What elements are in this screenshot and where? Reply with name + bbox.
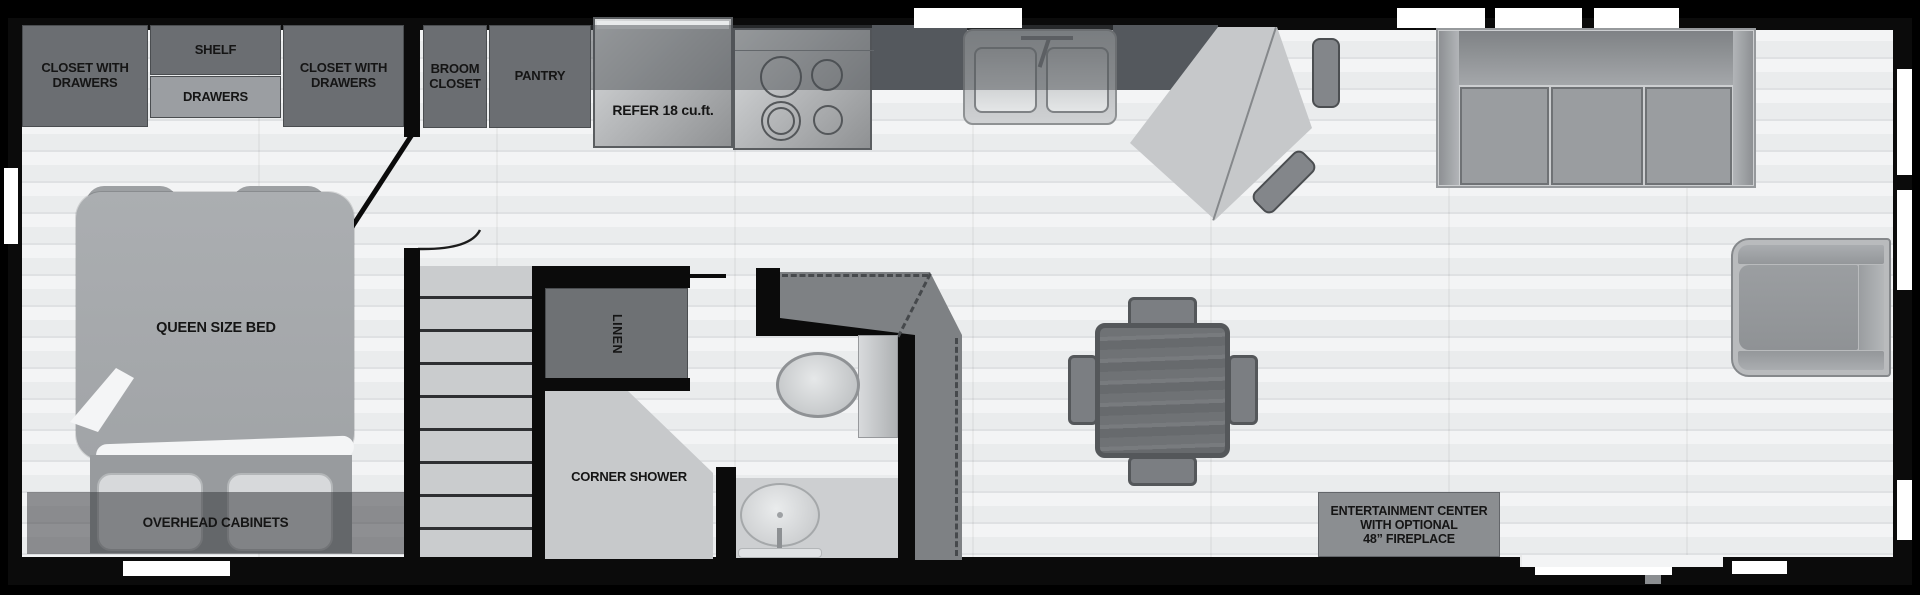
drawers-label: DRAWERS xyxy=(183,90,248,105)
bath-door-line xyxy=(690,274,726,278)
shelf-cabinet: SHELF xyxy=(150,25,281,75)
sofa xyxy=(1436,28,1756,188)
broom-closet: BROOM CLOSET xyxy=(423,25,487,128)
toilet-shelf xyxy=(858,335,898,438)
bar-stool xyxy=(1312,38,1340,108)
sofa-cushion xyxy=(1551,87,1643,185)
entry-step xyxy=(1535,567,1672,575)
entertainment-center-label-2: WITH OPTIONAL xyxy=(1360,518,1457,532)
shelf-label: SHELF xyxy=(195,43,237,58)
bedroom-door-wall-stub xyxy=(404,25,420,137)
linen-top-wall xyxy=(532,266,690,288)
linen-bottom-wall xyxy=(532,378,690,391)
window xyxy=(1897,480,1912,540)
stairs-right-wall xyxy=(532,266,545,557)
overhead-cabinets-label: OVERHEAD CABINETS xyxy=(143,515,289,530)
pantry-label: PANTRY xyxy=(515,69,566,84)
sofa-back xyxy=(1459,31,1733,85)
overhead-cabinets: OVERHEAD CABINETS xyxy=(27,492,404,554)
window xyxy=(1397,8,1485,28)
entry-recess xyxy=(1520,555,1723,567)
refer-label: REFER 18 cu.ft. xyxy=(612,103,713,119)
burner-icon xyxy=(761,101,801,141)
bedroom-door-swing-arc xyxy=(404,130,494,255)
wardrobe-door-track xyxy=(955,338,958,556)
drawers-cabinet: DRAWERS xyxy=(150,76,281,118)
linen-closet: LINEN xyxy=(545,288,688,380)
dinette-chair xyxy=(1068,355,1098,425)
closet-left-label: CLOSET WITH DRAWERS xyxy=(33,61,138,90)
closet-right-label: CLOSET WITH DRAWERS xyxy=(291,61,396,90)
closet-with-drawers-left: CLOSET WITH DRAWERS xyxy=(22,25,148,127)
wall-left xyxy=(8,18,22,585)
window xyxy=(123,561,230,576)
bath-sink-drain-icon xyxy=(777,512,783,518)
corner-shower-label: CORNER SHOWER xyxy=(571,470,687,485)
recliner-seat xyxy=(1739,265,1858,350)
window xyxy=(1897,190,1912,290)
dinette-chair xyxy=(1228,355,1258,425)
toilet xyxy=(776,352,860,418)
sofa-arm-right xyxy=(1733,31,1753,185)
entertainment-center-label-1: ENTERTAINMENT CENTER xyxy=(1331,504,1488,518)
wardrobe-door-track xyxy=(782,274,928,277)
bedroom-divider-wall xyxy=(404,248,420,557)
window xyxy=(4,168,18,244)
recliner-arm-top xyxy=(1738,245,1884,264)
countertop-band xyxy=(591,25,1218,90)
shower-vanity-wall xyxy=(716,467,736,557)
window xyxy=(1732,561,1787,574)
dinette-table xyxy=(1095,323,1230,458)
recliner-arm-bottom xyxy=(1738,351,1884,370)
entry-step-lower xyxy=(1645,575,1661,584)
stairs xyxy=(420,266,532,557)
entertainment-center: ENTERTAINMENT CENTER WITH OPTIONAL 48” F… xyxy=(1318,492,1500,557)
window xyxy=(1495,8,1582,28)
pantry: PANTRY xyxy=(489,25,591,128)
sofa-cushion xyxy=(1460,87,1549,185)
dinette-chair xyxy=(1128,456,1197,486)
closet-with-drawers-right: CLOSET WITH DRAWERS xyxy=(283,25,404,127)
recliner-back xyxy=(1859,265,1884,350)
window xyxy=(1594,8,1679,28)
recliner-chair xyxy=(1731,238,1891,377)
queen-bed-label: QUEEN SIZE BED xyxy=(156,320,276,336)
entertainment-center-label-3: 48” FIREPLACE xyxy=(1363,532,1455,546)
sofa-arm-left xyxy=(1439,31,1459,185)
sofa-cushion xyxy=(1645,87,1732,185)
window xyxy=(914,8,1022,28)
bath-sink-pedestal xyxy=(738,548,822,558)
window xyxy=(1897,69,1912,175)
bath-right-wall xyxy=(898,318,915,557)
linen-label: LINEN xyxy=(610,314,624,354)
burner-icon xyxy=(813,105,843,135)
floorplan-canvas: CLOSET WITH DRAWERS SHELF DRAWERS CLOSET… xyxy=(0,0,1920,595)
broom-closet-label: BROOM CLOSET xyxy=(428,62,483,91)
